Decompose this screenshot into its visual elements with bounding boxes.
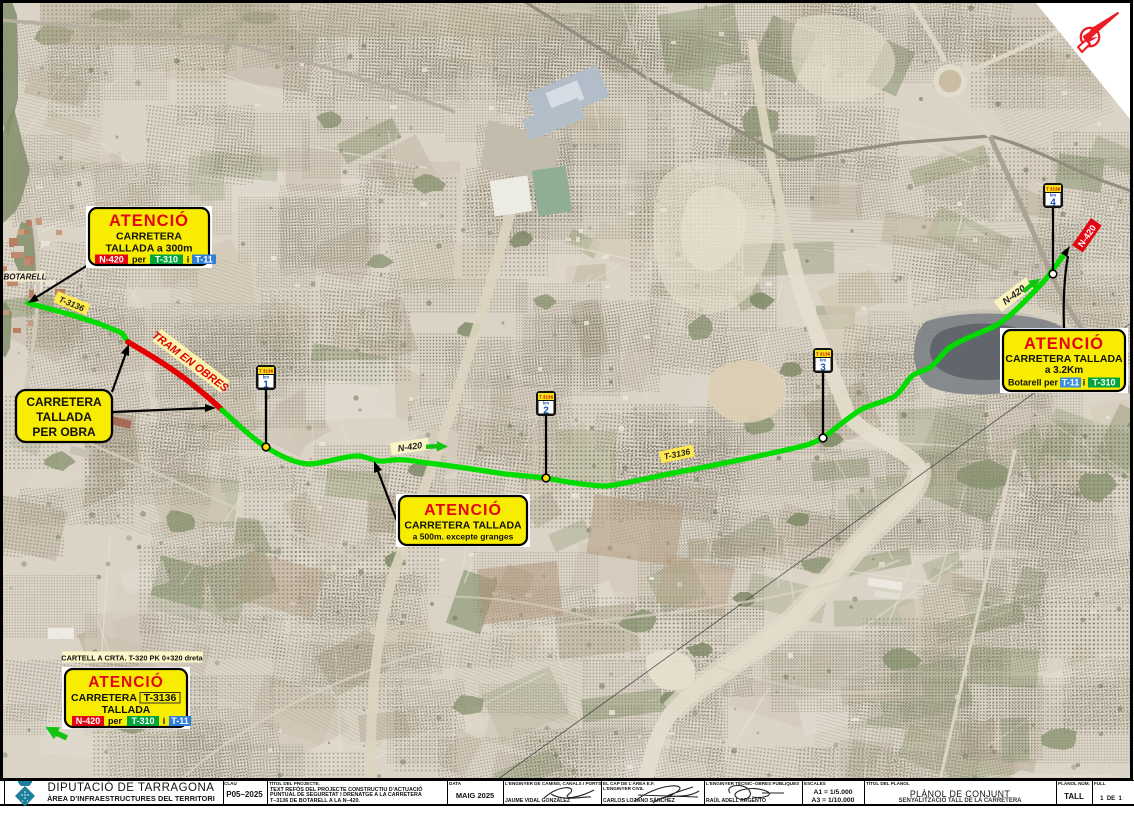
svg-text:i: i [1083,378,1086,388]
svg-text:i: i [187,255,190,265]
svg-text:N-420: N-420 [99,255,124,265]
svg-text:T 3136: T 3136 [1046,186,1061,191]
svg-text:T-310: T-310 [155,255,178,265]
svg-text:CARRETERA: CARRETERA [71,692,137,704]
svg-text:T-3136: T-3136 [144,692,177,704]
svg-text:T-11: T-11 [1062,378,1080,388]
svg-text:PER OBRA: PER OBRA [32,425,96,439]
svg-text:per: per [108,716,123,726]
svg-text:CARTELL A CRTA. T-320 PK 0+320: CARTELL A CRTA. T-320 PK 0+320 dreta [61,653,203,662]
svg-text:a 500m. excepte granges: a 500m. excepte granges [413,532,514,542]
svg-text:CARRETERA: CARRETERA [26,395,102,409]
svg-text:CARRETERA: CARRETERA [116,231,182,243]
svg-text:ATENCIÓ: ATENCIÓ [1024,334,1104,353]
svg-text:ATENCIÓ: ATENCIÓ [424,500,502,519]
svg-text:Botarell per: Botarell per [1008,378,1059,388]
svg-text:T-11: T-11 [171,716,189,726]
svg-text:T 3136: T 3136 [259,368,274,373]
svg-text:TALLADA: TALLADA [102,704,151,716]
svg-text:N-420: N-420 [76,716,101,726]
svg-text:a 3.2Km: a 3.2Km [1045,365,1083,376]
svg-text:ATENCIÓ: ATENCIÓ [88,673,164,691]
svg-text:T 3136: T 3136 [816,351,831,356]
svg-text:2: 2 [543,406,549,417]
svg-text:CARRETERA TALLADA: CARRETERA TALLADA [404,520,522,532]
svg-text:TALLADA: TALLADA [36,410,92,424]
svg-text:3: 3 [820,363,826,374]
svg-text:CARRETERA TALLADA: CARRETERA TALLADA [1005,353,1123,365]
svg-text:4: 4 [1050,198,1056,209]
svg-text:1: 1 [263,380,269,391]
svg-text:TALLADA a 300m: TALLADA a 300m [106,243,193,255]
svg-text:T 3136: T 3136 [539,394,554,399]
svg-text:T-310: T-310 [131,716,154,726]
svg-text:ATENCIÓ: ATENCIÓ [109,211,189,230]
svg-text:T-310: T-310 [1092,378,1115,388]
svg-text:per: per [132,255,147,265]
svg-text:BOTARELL: BOTARELL [4,273,47,282]
svg-text:T-11: T-11 [195,255,213,265]
svg-text:i: i [163,716,166,726]
